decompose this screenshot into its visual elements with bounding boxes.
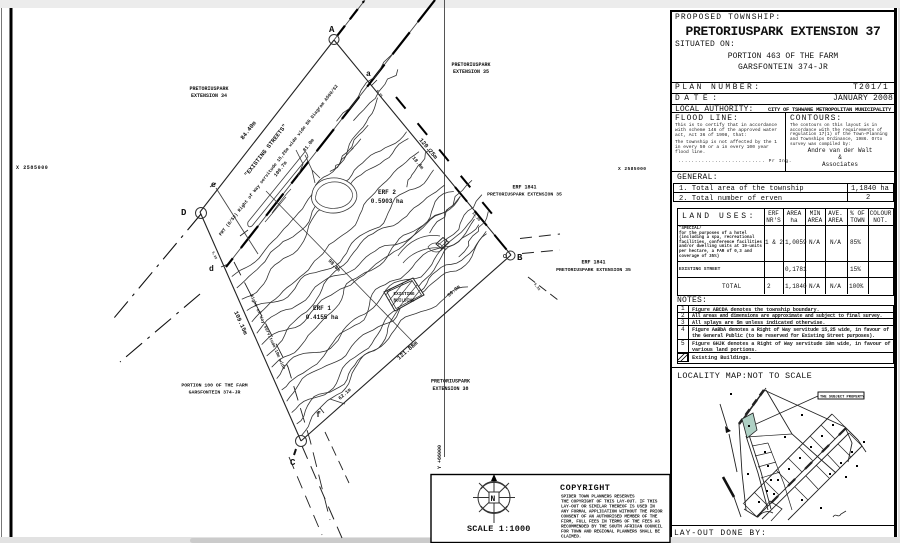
- svg-text:62.1m: 62.1m: [337, 387, 352, 401]
- svg-text:5,25: 5,25: [532, 283, 540, 292]
- svg-text:84.40m: 84.40m: [239, 120, 258, 142]
- svg-text:PRETORIUSPARK: PRETORIUSPARK: [189, 86, 228, 92]
- svg-text:EXTENSION 34: EXTENSION 34: [191, 93, 227, 99]
- svg-text:X 2585000: X 2585000: [618, 166, 646, 172]
- svg-text:ERF 1: ERF 1: [313, 305, 331, 312]
- svg-text:PRETORIUSPARK: PRETORIUSPARK: [431, 379, 470, 385]
- svg-text:CLAIMED.: CLAIMED.: [561, 535, 581, 540]
- svg-text:C: C: [290, 458, 296, 468]
- svg-text:5,25: 5,25: [210, 251, 217, 260]
- svg-text:a: a: [366, 70, 371, 79]
- svg-text:0.5903 ha: 0.5903 ha: [371, 198, 404, 205]
- svg-text:B: B: [517, 253, 523, 263]
- svg-text:GARSFONTEIN 374-JR: GARSFONTEIN 374-JR: [189, 390, 241, 396]
- svg-text:ERF 2: ERF 2: [378, 189, 396, 196]
- svg-text:56.3m: 56.3m: [446, 284, 461, 298]
- svg-text:N: N: [491, 495, 496, 504]
- svg-text:ERF 1841: ERF 1841: [581, 260, 605, 266]
- svg-text:PORTION 100 OF THE FARM: PORTION 100 OF THE FARM: [181, 383, 247, 389]
- svg-text:PRETORIUSPARK: PRETORIUSPARK: [451, 62, 490, 68]
- svg-text:EXTENSION 35: EXTENSION 35: [453, 69, 489, 75]
- svg-text:PRT (8/52) Right of Way servit: PRT (8/52) Right of Way servitude 15,25m…: [218, 83, 340, 237]
- svg-text:121.88m: 121.88m: [396, 339, 420, 361]
- svg-text:81.0m: 81.0m: [302, 138, 316, 154]
- svg-text:EXISTING: EXISTING: [393, 292, 414, 297]
- svg-text:SCALE 1:1000: SCALE 1:1000: [467, 524, 531, 534]
- svg-text:Right of Way servitude 10m wid: Right of Way servitude 10m wide: [248, 294, 286, 371]
- svg-text:Y +66000: Y +66000: [437, 445, 443, 469]
- svg-text:98.8m: 98.8m: [327, 258, 342, 273]
- svg-text:109.15m: 109.15m: [232, 310, 249, 336]
- svg-text:EXTENSION 38: EXTENSION 38: [432, 386, 468, 392]
- svg-text:d: d: [209, 265, 214, 274]
- svg-text:18.4m: 18.4m: [410, 155, 424, 170]
- svg-text:A: A: [329, 25, 335, 35]
- svg-text:BUILDING: BUILDING: [393, 299, 414, 304]
- svg-text:PRETORIUSPARK EXTENSION 35: PRETORIUSPARK EXTENSION 35: [556, 267, 631, 273]
- svg-text:15,25: 15,25: [470, 212, 480, 223]
- svg-text:0.4155 ha: 0.4155 ha: [306, 314, 339, 321]
- svg-text:COPYRIGHT: COPYRIGHT: [560, 483, 610, 493]
- svg-text:D: D: [181, 208, 187, 218]
- svg-text:120.25m: 120.25m: [417, 137, 439, 161]
- svg-text:PRETORIUSPARK EXTENSION 35: PRETORIUSPARK EXTENSION 35: [487, 192, 562, 198]
- svg-text:X 2585000: X 2585000: [16, 165, 48, 171]
- svg-text:THE SUBJECT PROPERTY: THE SUBJECT PROPERTY: [820, 396, 865, 400]
- svg-text:f: f: [316, 411, 321, 420]
- svg-text:ERF 1841: ERF 1841: [512, 185, 536, 191]
